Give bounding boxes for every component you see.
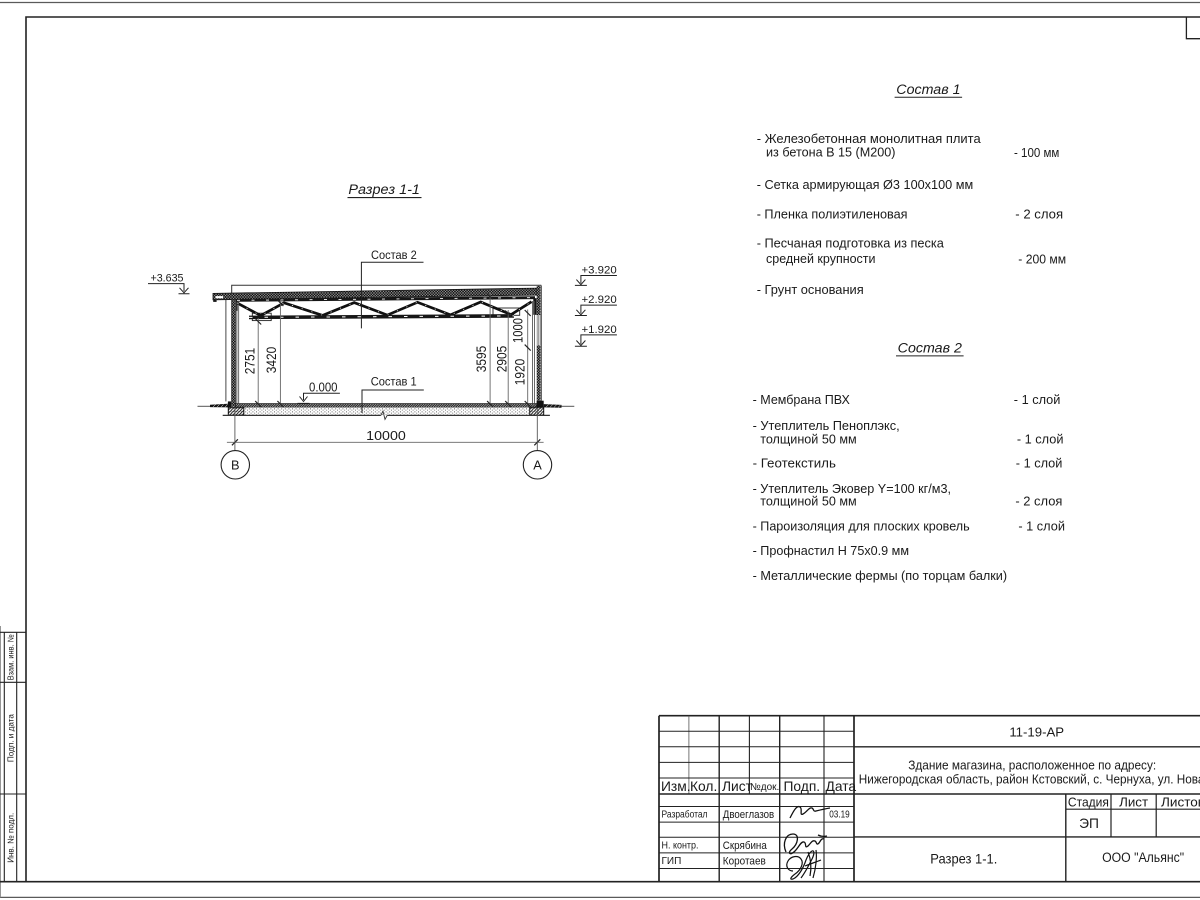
svg-text:3595: 3595 [474,345,489,372]
svg-text:- Сетка армирующая Ø3 100х100: - Сетка армирующая Ø3 100х100 мм [757,177,974,192]
svg-text:ГИП: ГИП [662,856,682,867]
svg-text:Инв. № подл.: Инв. № подл. [5,813,15,863]
svg-text:11-19-АР: 11-19-АР [1009,724,1064,739]
svg-text:толщиной 50 мм: толщиной 50 мм [760,493,857,508]
svg-text:+1.920: +1.920 [582,324,617,336]
svg-text:Н. контр.: Н. контр. [662,841,699,852]
svg-text:- Пленка полиэтиленовая: - Пленка полиэтиленовая [757,207,908,222]
svg-text:Лист: Лист [1119,795,1148,810]
svg-text:Состав 2: Состав 2 [898,341,963,356]
svg-text:А: А [533,457,542,472]
svg-text:Подп. и дата: Подп. и дата [5,714,15,762]
svg-text:2905: 2905 [495,345,510,372]
svg-text:- Мембрана ПВХ: - Мембрана ПВХ [753,392,850,407]
svg-text:- Геотекстиль: - Геотекстиль [753,456,836,471]
svg-text:Нижегородская область, район К: Нижегородская область, район Кстовский, … [859,772,1200,787]
svg-text:№док.: №док. [750,782,779,793]
svg-text:- 2 слоя: - 2 слоя [1015,493,1062,508]
svg-text:- 1 слой: - 1 слой [1014,392,1061,407]
svg-text:+3.635: +3.635 [151,273,184,285]
svg-text:В: В [231,457,240,472]
svg-text:- 100 мм: - 100 мм [1014,145,1059,160]
svg-text:- Грунт основания: - Грунт основания [757,282,864,297]
svg-text:из бетона В 15 (М200): из бетона В 15 (М200) [766,145,896,160]
svg-text:ООО "Альянс": ООО "Альянс" [1102,850,1184,865]
svg-text:Листов: Листов [1161,795,1200,810]
svg-text:Скрябина: Скрябина [723,840,768,852]
svg-text:Кол.: Кол. [690,779,717,794]
svg-text:- Профнастил Н 75х0.9 мм: - Профнастил Н 75х0.9 мм [753,543,909,558]
svg-text:+3.920: +3.920 [582,265,617,277]
svg-text:средней крупности: средней крупности [766,251,876,266]
svg-text:ЭП: ЭП [1079,816,1099,831]
svg-text:- Пароизоляция для плоских кро: - Пароизоляция для плоских кровель [753,518,970,533]
svg-text:+2.920: +2.920 [582,294,617,306]
svg-text:- 1 слой: - 1 слой [1017,431,1064,446]
svg-text:Стадия: Стадия [1068,795,1109,810]
svg-text:1920: 1920 [513,358,528,385]
svg-text:Состав 1: Состав 1 [371,375,417,389]
svg-text:Подп.: Подп. [784,779,821,794]
svg-text:Коротаев: Коротаев [723,856,766,868]
svg-text:0.000: 0.000 [309,380,338,395]
svg-text:Состав 2: Состав 2 [371,248,417,262]
svg-text:1000: 1000 [511,318,526,343]
svg-text:- 200 мм: - 200 мм [1018,251,1066,266]
svg-text:- Металлические фермы (по торц: - Металлические фермы (по торцам балки) [753,568,1008,583]
svg-text:Взам. инв. №: Взам. инв. № [5,634,15,680]
svg-text:Дата: Дата [826,779,857,794]
svg-text:Изм.: Изм. [661,779,691,794]
svg-text:Лист: Лист [722,779,753,794]
svg-text:- 2 слоя: - 2 слоя [1015,207,1063,222]
svg-text:2751: 2751 [243,348,258,375]
svg-text:Разрез 1-1: Разрез 1-1 [348,182,420,198]
svg-text:Состав 1: Состав 1 [896,82,960,97]
svg-text:Разрез 1-1.: Разрез 1-1. [930,850,997,866]
svg-text:- Песчаная подготовка из песка: - Песчаная подготовка из песка [757,236,945,251]
svg-text:03.19: 03.19 [829,809,850,820]
svg-text:Здание магазина, расположенное: Здание магазина, расположенное по адресу… [908,757,1156,772]
svg-text:толщиной 50 мм: толщиной 50 мм [760,431,857,446]
svg-text:Двоеглазов: Двоеглазов [723,809,774,821]
svg-text:- Железобетонная монолитная п: - Железобетонная монолитная плита [757,131,982,146]
svg-text:Разработал: Разработал [662,809,708,821]
svg-text:- 1 слой: - 1 слой [1018,518,1065,533]
svg-text:10000: 10000 [366,428,406,443]
svg-text:3420: 3420 [264,346,279,373]
svg-text:- 1 слой: - 1 слой [1016,456,1063,471]
